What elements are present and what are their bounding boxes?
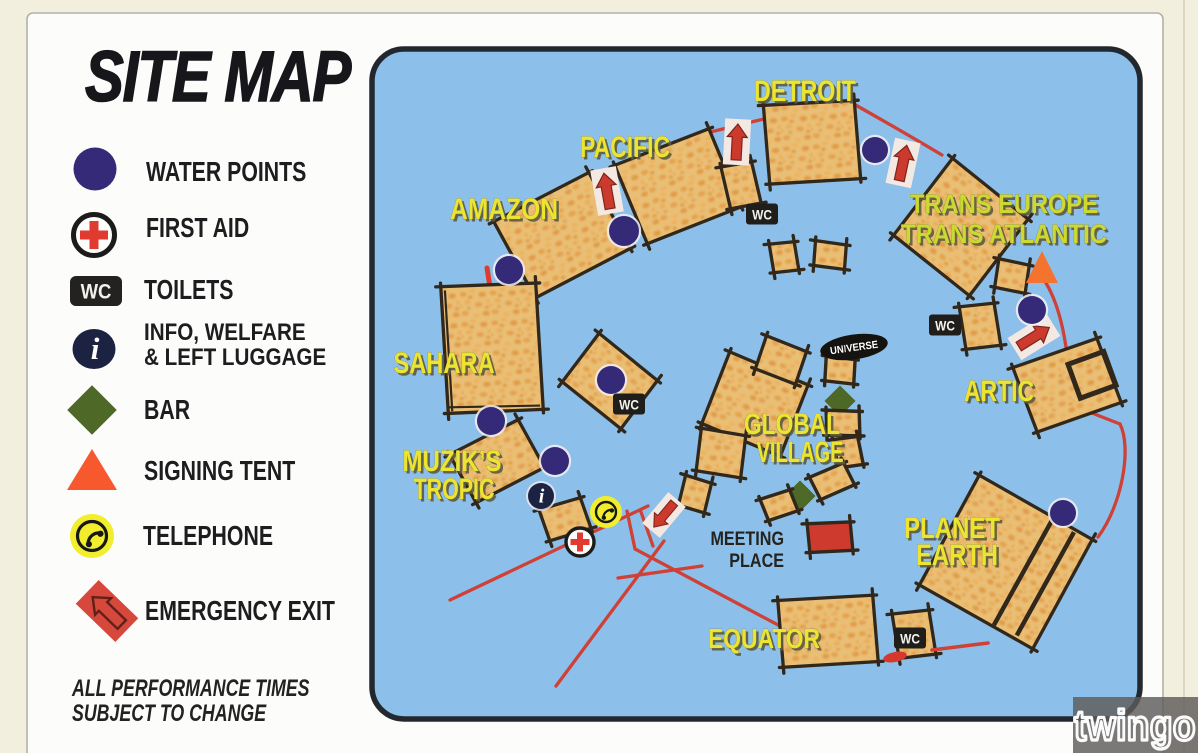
svg-text:AMAZON: AMAZON	[450, 193, 558, 226]
svg-text:DETROIT: DETROIT	[754, 75, 856, 108]
svg-text:i: i	[539, 486, 545, 508]
svg-text:& LEFT LUGGAGE: & LEFT LUGGAGE	[144, 344, 326, 371]
svg-text:TROPIC: TROPIC	[414, 473, 495, 506]
svg-text:MEETING: MEETING	[710, 528, 784, 550]
svg-text:twingo: twingo	[1074, 702, 1196, 749]
svg-text:SIGNING TENT: SIGNING TENT	[144, 455, 295, 487]
svg-text:VILLAGE: VILLAGE	[757, 436, 844, 469]
svg-text:TRANS EUROPE: TRANS EUROPE	[910, 189, 1098, 219]
svg-text:SAHARA: SAHARA	[394, 347, 495, 380]
svg-text:WC: WC	[900, 631, 920, 647]
svg-text:WC: WC	[619, 397, 639, 413]
svg-text:TELEPHONE: TELEPHONE	[143, 520, 273, 552]
svg-text:INFO, WELFARE: INFO, WELFARE	[144, 319, 306, 346]
svg-text:EMERGENCY EXIT: EMERGENCY EXIT	[145, 595, 335, 627]
svg-text:EQUATOR: EQUATOR	[708, 623, 820, 654]
svg-text:BAR: BAR	[144, 394, 190, 426]
svg-text:ALL PERFORMANCE TIMES: ALL PERFORMANCE TIMES	[71, 676, 309, 702]
svg-text:i: i	[91, 331, 100, 366]
svg-text:PACIFIC: PACIFIC	[580, 131, 670, 164]
svg-text:ARTIC: ARTIC	[964, 375, 1034, 408]
svg-text:WC: WC	[81, 280, 112, 303]
svg-text:PLACE: PLACE	[729, 550, 784, 572]
svg-text:EARTH: EARTH	[916, 539, 998, 572]
svg-text:WC: WC	[752, 207, 772, 223]
svg-text:FIRST AID: FIRST AID	[146, 212, 249, 244]
svg-text:WC: WC	[935, 318, 955, 334]
svg-text:SITE MAP: SITE MAP	[85, 36, 352, 116]
svg-text:TRANS ATLANTIC: TRANS ATLANTIC	[901, 219, 1107, 249]
svg-text:SUBJECT TO CHANGE: SUBJECT TO CHANGE	[72, 701, 267, 727]
svg-text:WATER POINTS: WATER POINTS	[146, 156, 306, 188]
svg-text:TOILETS: TOILETS	[144, 274, 233, 306]
